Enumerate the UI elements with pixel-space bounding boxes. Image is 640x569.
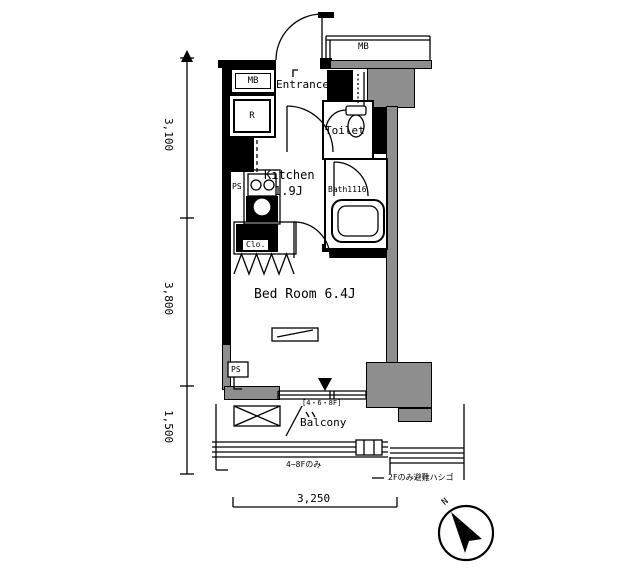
window-center-marker (318, 378, 332, 391)
entrance-door-arc (276, 14, 322, 60)
compass-needle-icon (451, 512, 482, 553)
note-ladder: 2Fのみ避難ハシゴ (388, 474, 454, 482)
dim-arrow-icon (181, 50, 193, 62)
room-label-entrance: Entrance (276, 79, 329, 90)
dim-left-top: 3,100 (163, 118, 174, 151)
closet-bifold-doors (234, 254, 294, 274)
ps-kitchen-label: PS (232, 183, 242, 191)
room-label-bath: Bath1116 (328, 186, 367, 194)
balcony-floors-label: [4・6・8F] (302, 400, 341, 407)
room-label-kitchen: Kitchen (264, 169, 315, 181)
sink-icon (253, 198, 271, 216)
bedroom-door-arc (294, 222, 330, 258)
dim-left-bottom: 1,500 (163, 410, 174, 443)
room-label-toilet: Toilet (325, 125, 365, 136)
ladder-hatch (356, 440, 382, 455)
meter-box-top-label: MB (358, 43, 369, 52)
ps-bedroom-label: PS (231, 366, 241, 374)
room-label-balcony: Balcony (300, 417, 346, 428)
dim-bottom-label: 3,250 (297, 493, 330, 504)
room-label-kitchen-size: 1.9J (274, 185, 303, 197)
note-upper-floors: 4−8Fのみ (284, 461, 323, 469)
room-label-bedroom: Bed Room 6.4J (254, 288, 356, 301)
toilet-tank-icon (346, 106, 366, 115)
closet-label: Clo. (242, 239, 269, 251)
dim-left-middle: 3,800 (163, 282, 174, 315)
bathtub-inner (338, 206, 378, 236)
floor-plan: MB R (0, 0, 640, 569)
